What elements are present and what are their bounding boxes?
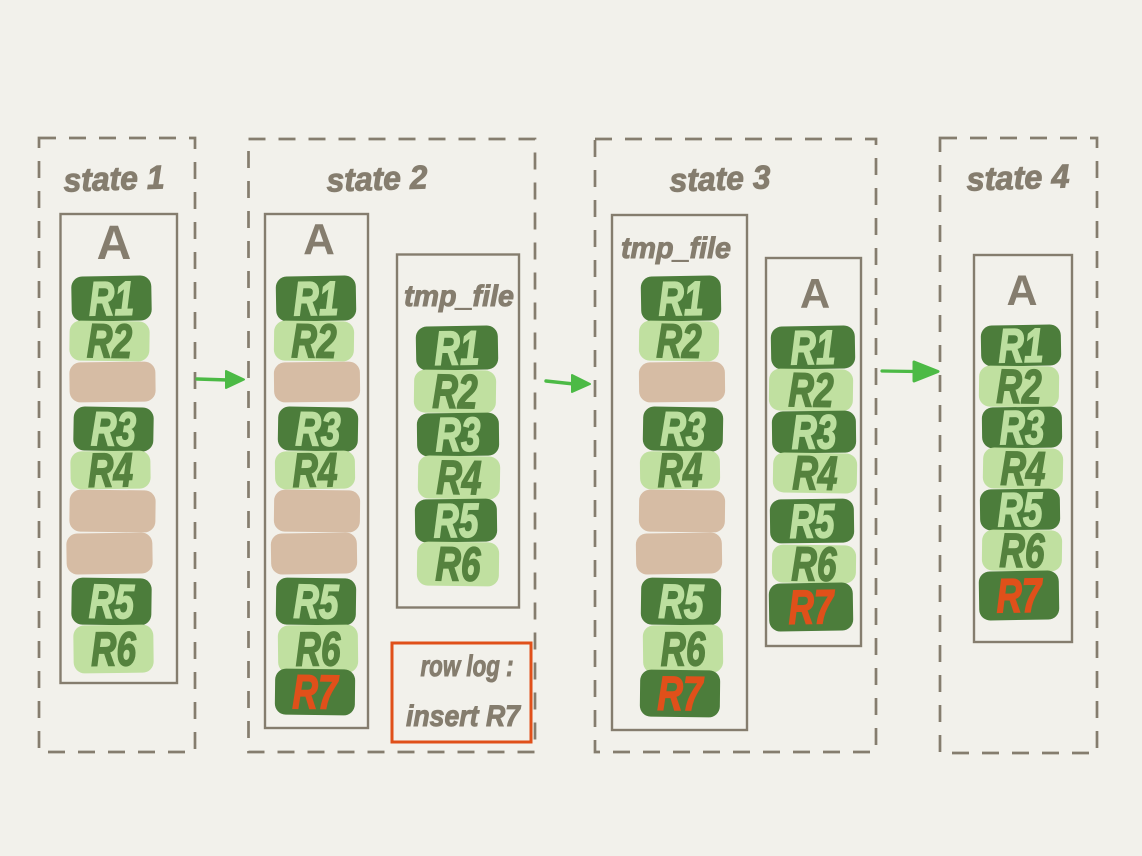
svg-text:R4: R4	[88, 444, 134, 498]
svg-text:R4: R4	[292, 444, 338, 498]
svg-text:tmp_file: tmp_file	[621, 232, 731, 265]
svg-text:R7: R7	[788, 581, 836, 635]
svg-text:A: A	[97, 217, 132, 270]
svg-text:R7: R7	[996, 570, 1044, 624]
svg-text:R7: R7	[657, 668, 704, 722]
svg-text:R2: R2	[656, 315, 702, 369]
svg-text:R5: R5	[293, 576, 340, 630]
svg-text:R5: R5	[89, 576, 136, 630]
svg-text:state 1: state 1	[63, 158, 165, 199]
svg-text:R6: R6	[91, 623, 137, 677]
svg-text:insert R7: insert R7	[406, 700, 521, 733]
svg-text:R2: R2	[291, 315, 337, 369]
svg-text:R2: R2	[87, 315, 133, 369]
svg-text:tmp_file: tmp_file	[404, 280, 514, 313]
svg-text:A: A	[1006, 267, 1037, 315]
svg-text:R6: R6	[435, 538, 481, 592]
svg-text:R5: R5	[658, 576, 705, 630]
svg-text:state 3: state 3	[669, 158, 771, 199]
svg-text:R4: R4	[792, 447, 838, 501]
svg-text:A: A	[800, 270, 830, 317]
svg-text:state 2: state 2	[326, 158, 429, 199]
svg-text:R4: R4	[657, 444, 703, 498]
svg-text:A: A	[303, 215, 335, 264]
svg-text:state 4: state 4	[966, 157, 1070, 198]
svg-text:row log :: row log :	[421, 650, 514, 683]
svg-text:R7: R7	[292, 666, 339, 720]
